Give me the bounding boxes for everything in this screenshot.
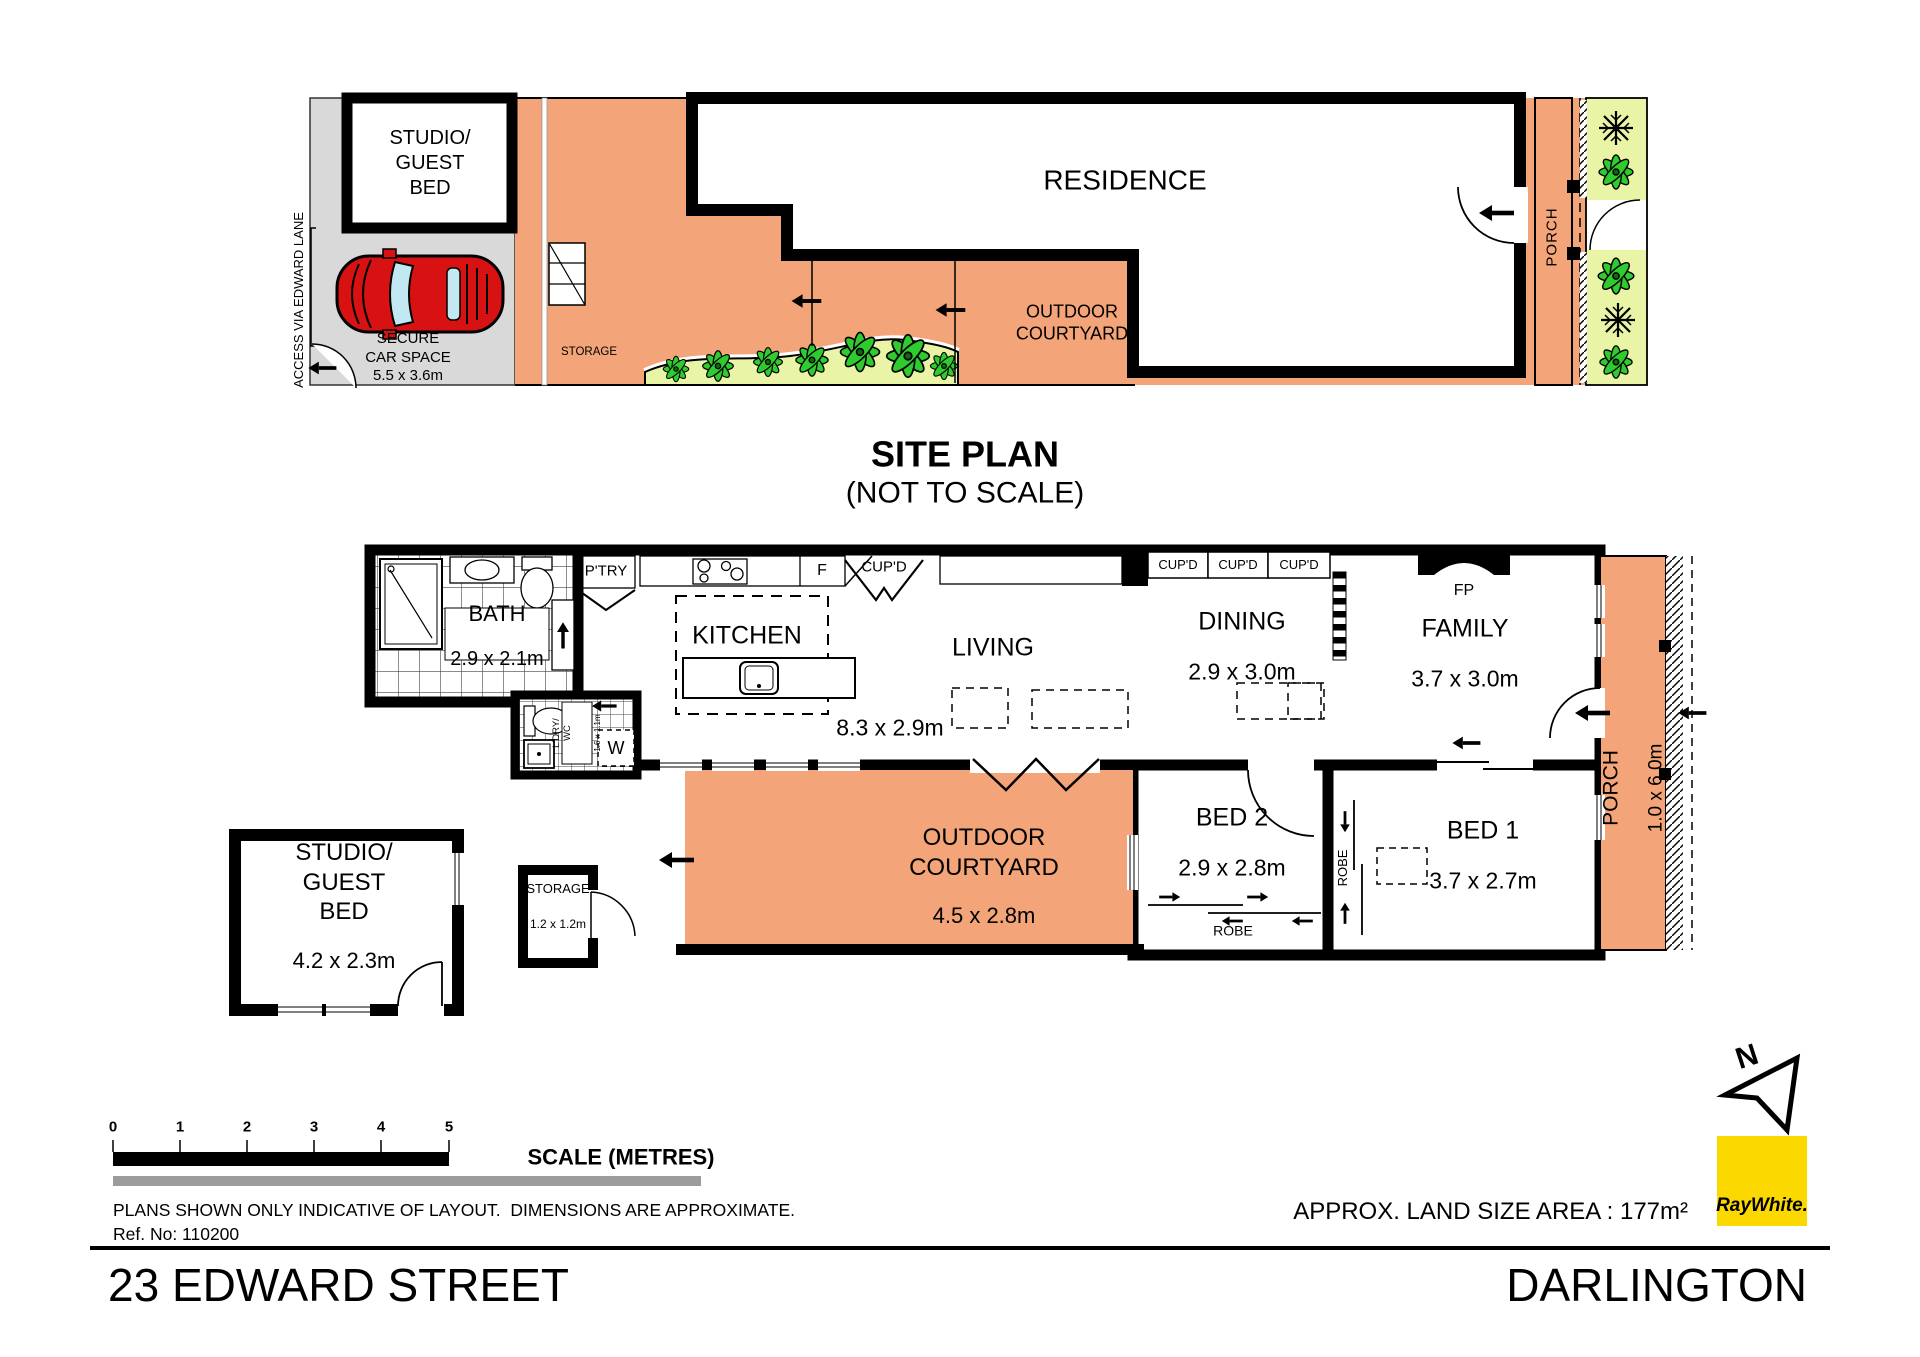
ray-white-wordmark: RayWhite. xyxy=(1716,1195,1808,1226)
site-plan-subtitle: (NOT TO SCALE) xyxy=(846,474,1084,511)
plant-icon xyxy=(754,348,783,377)
room-bath: BATH 2.9 x 2.1m xyxy=(450,580,543,692)
plant-icon xyxy=(930,352,957,379)
plant-icon xyxy=(1600,346,1632,378)
room-living: LIVING xyxy=(952,633,1034,664)
scale-tick-1: 1 xyxy=(176,1119,184,1138)
robe-label: ROBE xyxy=(1213,922,1253,939)
room-storage: STORAGE 1.2 x 1.2m xyxy=(526,861,589,951)
cupboard-label: CUP'D xyxy=(1158,557,1197,573)
scale-tick-3: 3 xyxy=(310,1119,318,1138)
scale-bar-geometry xyxy=(90,1140,1830,1250)
stairs-icon xyxy=(549,243,585,305)
room-family: FAMILY 3.7 x 3.0m xyxy=(1411,594,1518,713)
car-icon xyxy=(337,249,503,339)
room-kitchen: KITCHEN xyxy=(692,621,802,652)
land-size-text: APPROX. LAND SIZE AREA : 177m² xyxy=(1293,1198,1688,1226)
suburb-name: DARLINGTON xyxy=(1506,1258,1807,1312)
ray-white-logo: RayWhite. xyxy=(1717,1136,1807,1226)
fireplace-icon xyxy=(1418,550,1510,575)
basin-icon xyxy=(465,560,499,580)
site-plan-geometry xyxy=(308,98,1647,388)
pantry-label: P'TRY xyxy=(585,563,628,582)
access-label: ACCESS VIA EDWARD LANE xyxy=(291,212,307,388)
street-address: 23 EDWARD STREET xyxy=(108,1258,569,1312)
room-courtyard: OUTDOOR COURTYARD 4.5 x 2.8m xyxy=(909,803,1059,949)
scale-tick-5: 5 xyxy=(445,1119,453,1138)
scale-label: SCALE (METRES) xyxy=(528,1143,715,1170)
plan-geometry xyxy=(0,0,1920,1357)
site-courtyard-label: OUTDOOR COURTYARD xyxy=(1016,301,1128,346)
sink-icon xyxy=(740,662,778,694)
washer-label: W xyxy=(608,737,625,759)
site-studio-label: STUDIO/ GUEST BED xyxy=(389,126,470,200)
cupboard-label: CUP'D xyxy=(1279,557,1318,573)
room-bed1: BED 1 3.7 x 2.7m xyxy=(1429,796,1536,915)
plant-icon xyxy=(887,335,930,378)
room-dining: DINING 2.9 x 3.0m xyxy=(1188,587,1295,706)
fridge-label: F xyxy=(817,561,827,581)
site-plan-title: SITE PLAN xyxy=(871,433,1059,478)
plant-icon xyxy=(1599,155,1633,189)
room-living-dims: 8.3 x 2.9m xyxy=(836,714,943,743)
scale-tick-4: 4 xyxy=(377,1119,385,1138)
room-bed2: BED 2 2.9 x 2.8m xyxy=(1178,783,1285,902)
pine-plant-icon xyxy=(1599,111,1633,145)
scale-tick-0: 0 xyxy=(109,1119,117,1138)
site-storage-label: STORAGE xyxy=(561,345,617,359)
plant-icon xyxy=(1598,258,1634,294)
car-space-label: SECURE CAR SPACE 5.5 x 3.6m xyxy=(365,330,451,386)
scale-tick-2: 2 xyxy=(243,1119,251,1138)
cupboard-label: CUP'D xyxy=(1218,557,1257,573)
room-porch: PORCH 1.0 x 6.0m xyxy=(1578,744,1687,833)
plant-icon xyxy=(703,351,734,382)
residence-label: RESIDENCE xyxy=(1043,164,1206,199)
disclaimer-text: PLANS SHOWN ONLY INDICATIVE OF LAYOUT. D… xyxy=(113,1200,795,1221)
site-porch-label: PORCH xyxy=(1544,207,1563,266)
island-bench xyxy=(683,658,855,698)
pine-plant-icon xyxy=(1601,303,1635,337)
plant-icon xyxy=(796,344,828,376)
room-studio: STUDIO/ GUEST BED 4.2 x 2.3m xyxy=(293,818,396,994)
cupboard-label: CUP'D xyxy=(861,559,906,578)
floor-plan-page: SITE PLAN (NOT TO SCALE) RESIDENCE OUTDO… xyxy=(0,0,1920,1357)
robe-label: ROBE xyxy=(1335,850,1351,887)
wall-segment xyxy=(1333,572,1346,660)
plant-icon xyxy=(840,332,879,371)
front-garden xyxy=(1580,98,1647,385)
ref-number: Ref. No: 110200 xyxy=(113,1224,239,1245)
plant-icon xyxy=(663,356,689,382)
fireplace-label: FP xyxy=(1454,581,1474,601)
